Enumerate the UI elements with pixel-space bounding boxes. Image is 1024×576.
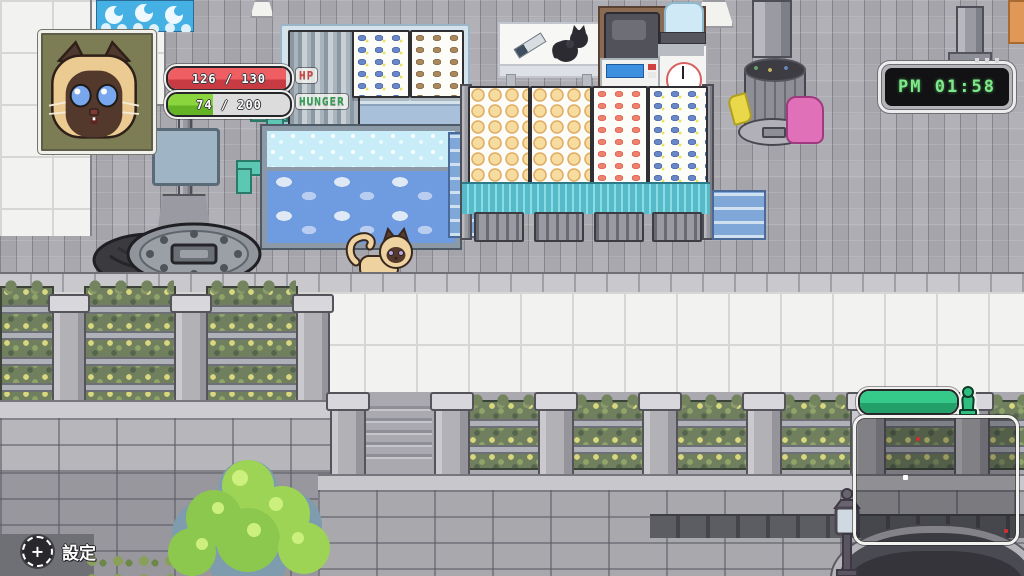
clock-notch — [975, 58, 979, 63]
settings-label[interactable]: 設定 — [62, 539, 96, 564]
register-button — [648, 64, 656, 70]
railing-pillar — [52, 294, 86, 406]
railing-pillar — [746, 392, 782, 478]
green-tree — [158, 456, 342, 576]
siamese-cat-portrait-icon — [44, 36, 144, 142]
street-sign-panel — [152, 128, 220, 186]
stall-board-bluefish — [648, 86, 708, 190]
game-clock: PM 01:58 — [878, 61, 1016, 113]
stall-board-cat-snacks — [530, 86, 592, 190]
trash-can-opening — [744, 58, 806, 82]
player-position-dot — [903, 475, 908, 480]
railing-pillar — [642, 392, 678, 478]
dried-fish-display — [410, 30, 464, 98]
planter-bush — [674, 400, 750, 470]
register-screen — [606, 64, 644, 78]
territory-bar — [858, 389, 959, 415]
planter-bush — [778, 400, 854, 470]
planter-bush — [206, 286, 298, 404]
ceiling-pillar — [752, 0, 792, 58]
planter-bush — [466, 400, 542, 470]
pink-trash-bag — [786, 96, 824, 144]
marker-dot — [1004, 529, 1008, 533]
game-viewport: 126 / 130 HP 74 / 200 HUNGER PM 01:58 — [0, 0, 1024, 576]
stall-stool — [534, 212, 584, 242]
register-lid — [612, 20, 646, 40]
scale-needle — [682, 66, 684, 79]
railing-pillar — [434, 392, 470, 478]
planter-bush — [570, 400, 646, 470]
stall-board-cat-snacks — [468, 86, 530, 190]
tank-ice-layer — [267, 131, 455, 171]
hp-bar-value: 126 / 130 — [168, 68, 290, 89]
railing-pillar — [538, 392, 574, 478]
territory-bar-fill — [860, 391, 957, 413]
lid-handle — [762, 127, 786, 138]
hunger-bar: 74 / 200 — [166, 92, 292, 117]
clock-notch — [985, 58, 989, 63]
stall-stool — [594, 212, 644, 242]
territory-map-overlay — [853, 415, 1019, 545]
plus-button-icon[interactable]: + — [22, 536, 53, 567]
hunger-label: HUNGER — [296, 94, 348, 109]
player-portrait-frame — [38, 30, 156, 154]
jug-stand — [660, 32, 706, 44]
plus-glyph: + — [31, 542, 44, 561]
stall-board-salmon — [592, 86, 648, 190]
hp-label: HP — [296, 68, 317, 83]
blue-fish-display — [352, 30, 410, 98]
teal-stall-cloth — [462, 182, 710, 214]
planter-bush — [84, 286, 176, 404]
railing-pillar — [174, 294, 208, 406]
hydrant-marker-icon — [954, 384, 982, 418]
blue-crate — [712, 190, 766, 240]
teal-faucet-spout — [236, 168, 252, 194]
register-button — [648, 72, 656, 78]
clock-time: PM 01:58 — [885, 68, 1009, 106]
stall-stool — [652, 212, 702, 242]
stall-stool — [474, 212, 524, 242]
wave-banner-sign — [96, 0, 194, 32]
hunger-bar-value: 74 / 200 — [168, 94, 290, 115]
marker-dot — [916, 437, 920, 441]
scale-top — [658, 44, 704, 56]
railing-bars — [364, 406, 432, 464]
clock-notch — [995, 58, 999, 63]
planter-bush — [0, 286, 54, 404]
orange-crate — [1008, 0, 1024, 44]
hp-bar: 126 / 130 — [166, 66, 292, 91]
black-cat — [550, 24, 592, 64]
left-planter-row — [0, 282, 334, 404]
settings-control: + 設定 — [22, 536, 96, 567]
